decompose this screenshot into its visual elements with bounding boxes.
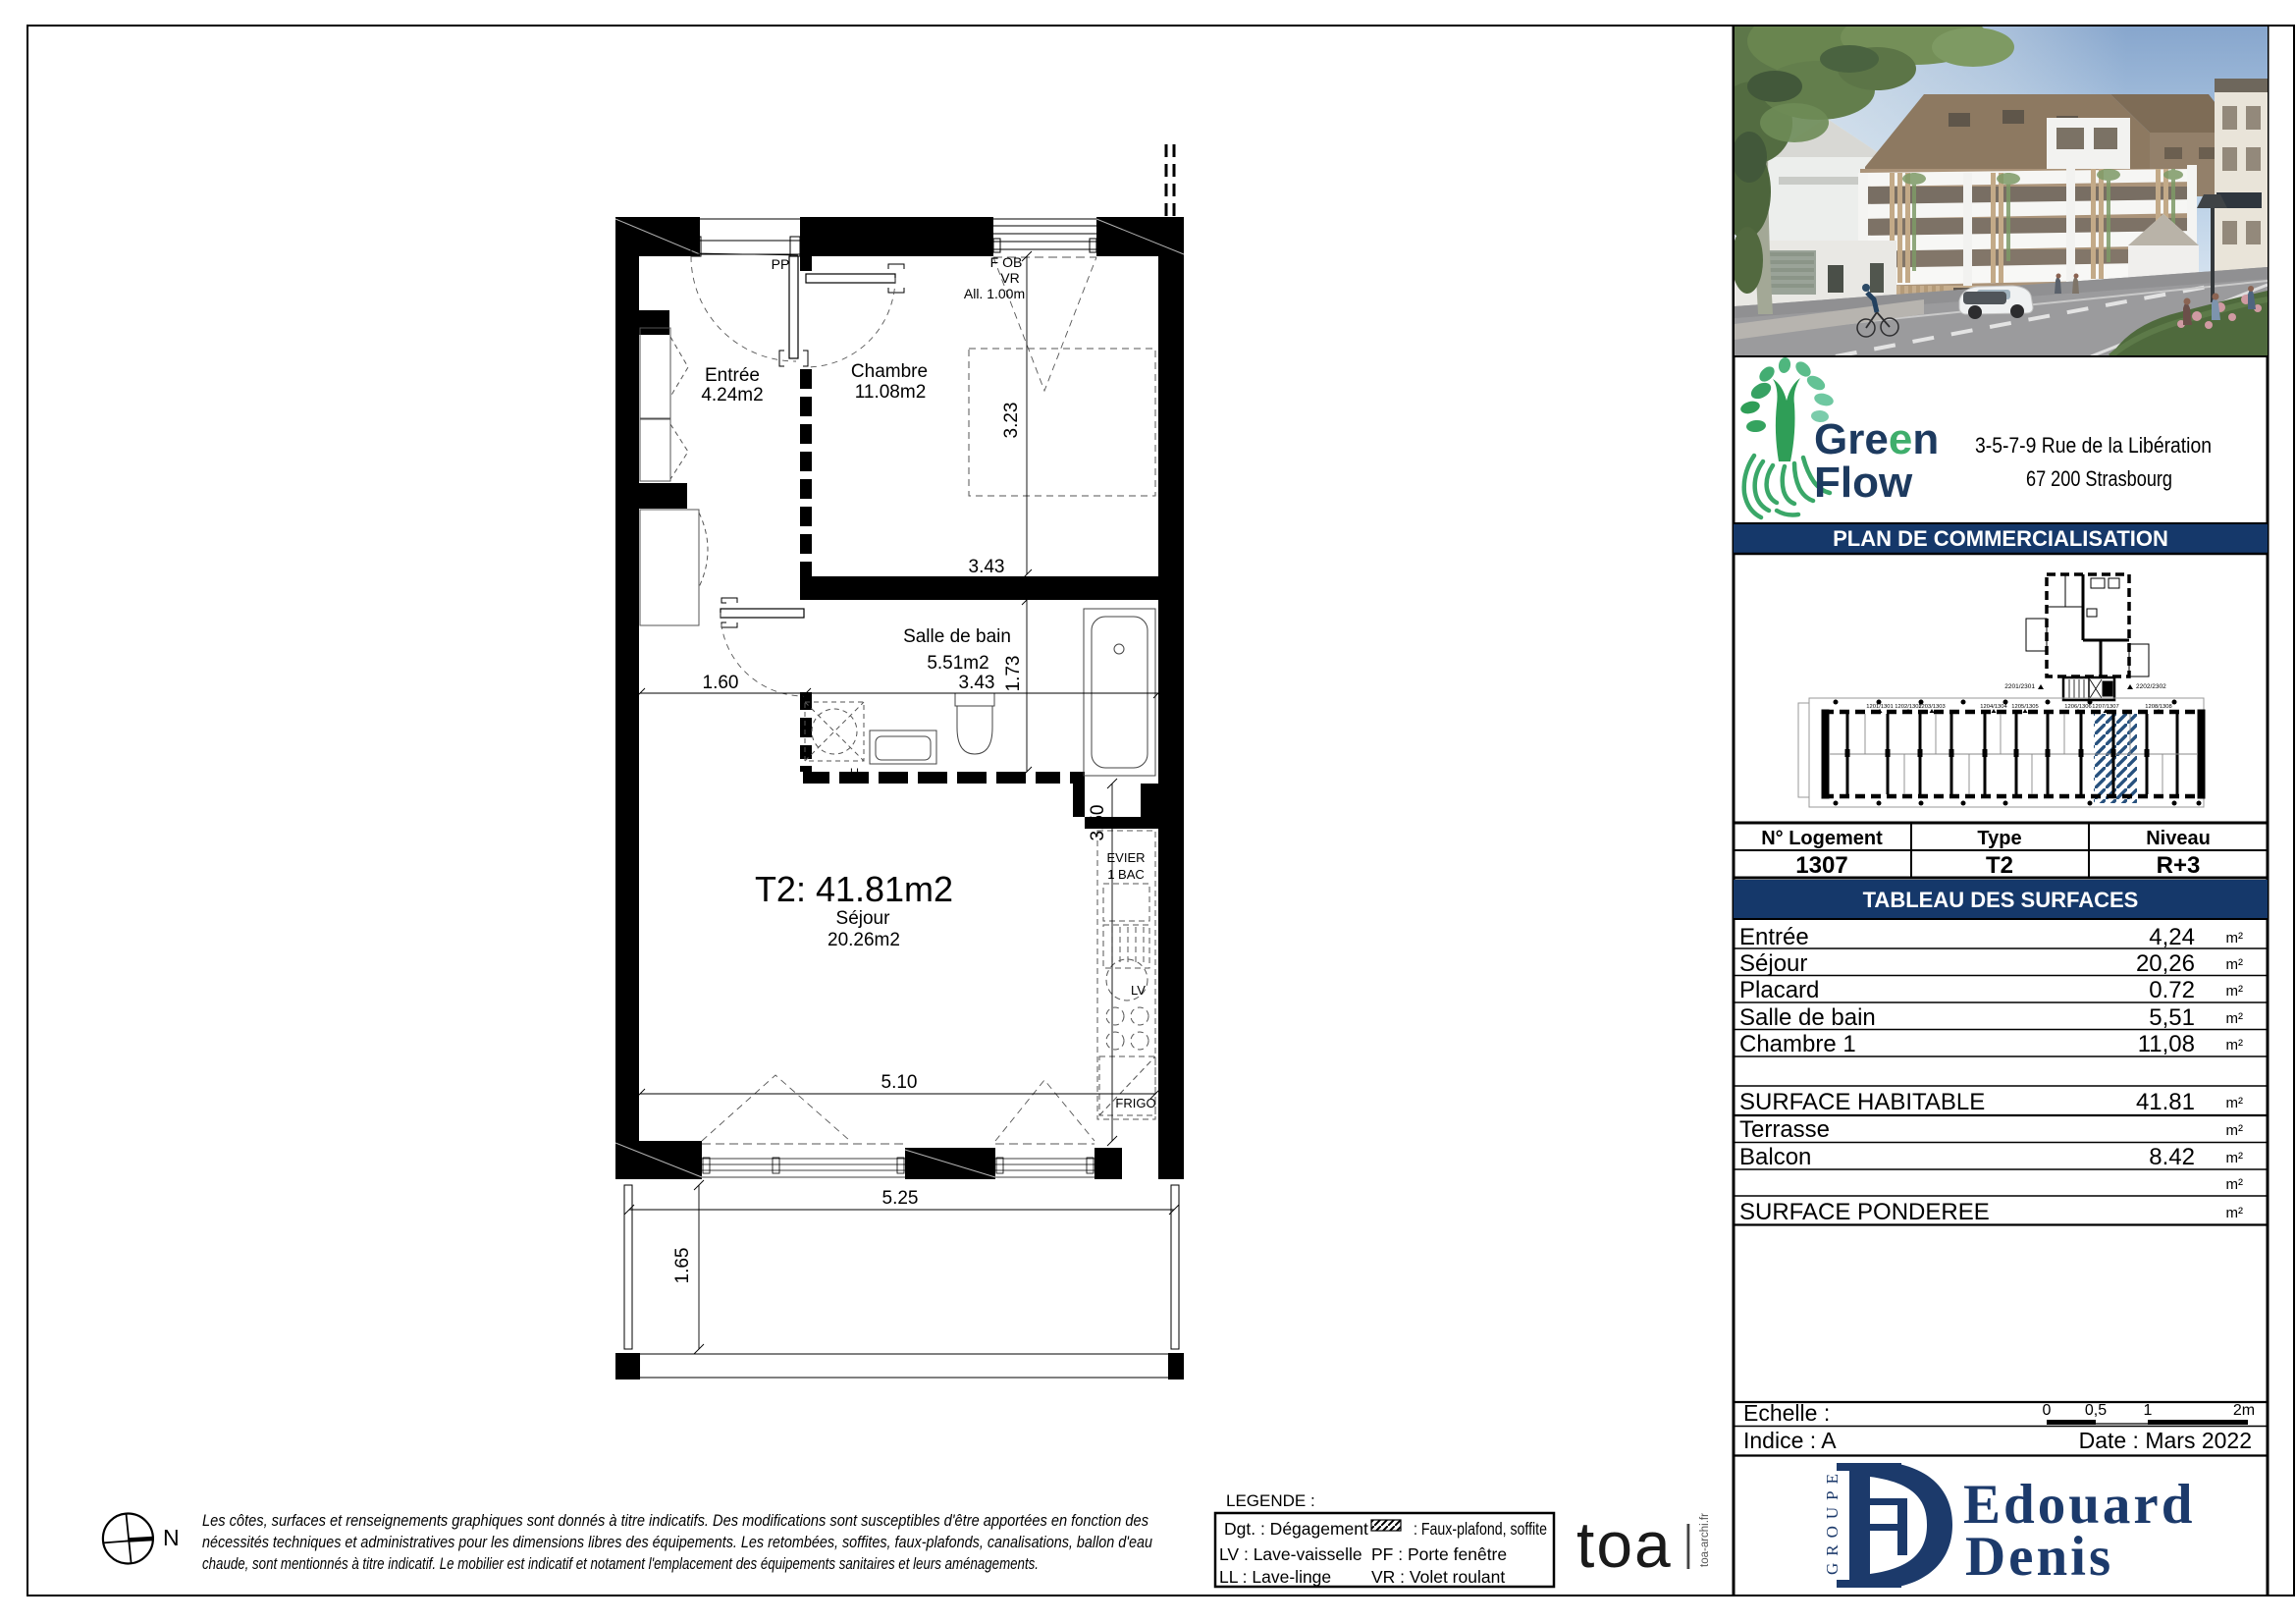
svg-text:0.72: 0.72 <box>2149 977 2195 1003</box>
svg-text:GROUPE: GROUPE <box>1823 1467 1842 1575</box>
svg-text:2201/2301: 2201/2301 <box>2004 683 2035 690</box>
svg-text:VR : Volet roulant: VR : Volet roulant <box>1371 1567 1505 1587</box>
svg-text:1.65: 1.65 <box>672 1248 693 1284</box>
svg-text:All. 1.00m: All. 1.00m <box>964 286 1025 301</box>
svg-text:Dgt. : Dégagement: Dgt. : Dégagement <box>1224 1519 1368 1539</box>
svg-text:m²: m² <box>2226 1095 2244 1111</box>
svg-text:2m: 2m <box>2233 1402 2255 1419</box>
svg-text:Entrée: Entrée <box>705 365 760 386</box>
svg-text:8.42: 8.42 <box>2149 1144 2195 1170</box>
svg-text:3.43: 3.43 <box>969 557 1005 577</box>
svg-text:R+3: R+3 <box>2157 852 2201 879</box>
svg-text:Séjour: Séjour <box>836 908 891 929</box>
svg-text:Denis: Denis <box>1965 1526 2113 1588</box>
svg-text:67 200 Strasbourg: 67 200 Strasbourg <box>2026 466 2172 491</box>
svg-text:N° Logement: N° Logement <box>1761 828 1883 849</box>
svg-text:PP: PP <box>772 256 790 272</box>
svg-text:5.10: 5.10 <box>881 1072 918 1093</box>
svg-text:TABLEAU DES SURFACES: TABLEAU DES SURFACES <box>1863 888 2139 912</box>
svg-text:Echelle :: Echelle : <box>1743 1400 1830 1426</box>
svg-text:1.60: 1.60 <box>703 673 739 693</box>
svg-text:Indice : A: Indice : A <box>1743 1428 1837 1453</box>
svg-text:11,08: 11,08 <box>2138 1031 2195 1057</box>
svg-text:Séjour: Séjour <box>1739 950 1807 977</box>
svg-text:toa-archi.fr: toa-archi.fr <box>1699 1513 1711 1567</box>
svg-text:PLAN DE COMMERCIALISATION: PLAN DE COMMERCIALISATION <box>1833 526 2168 551</box>
svg-text:5,51: 5,51 <box>2149 1004 2195 1031</box>
svg-text:Salle de bain: Salle de bain <box>903 626 1011 647</box>
svg-text:3.50: 3.50 <box>1088 805 1108 841</box>
svg-text:Chambre: Chambre <box>851 361 928 382</box>
svg-text:nécessités techniques et admin: nécessités techniques et administratives… <box>202 1534 1152 1551</box>
svg-text:0: 0 <box>2043 1402 2052 1419</box>
svg-text:20,26: 20,26 <box>2136 950 2195 977</box>
svg-text:m²: m² <box>2226 1205 2244 1221</box>
svg-text:m²: m² <box>2226 1150 2244 1166</box>
svg-text:LL: LL <box>850 767 862 779</box>
svg-text:Type: Type <box>1977 828 2021 849</box>
svg-text:Balcon: Balcon <box>1739 1144 1811 1170</box>
svg-text:Niveau: Niveau <box>2146 828 2211 849</box>
svg-text:0,5: 0,5 <box>2085 1402 2107 1419</box>
svg-text:m²: m² <box>2226 1010 2244 1027</box>
svg-text:1: 1 <box>2144 1402 2153 1419</box>
svg-text:: Faux-plafond, soffite: : Faux-plafond, soffite <box>1414 1519 1547 1539</box>
svg-text:Date : Mars 2022: Date : Mars 2022 <box>2079 1428 2252 1453</box>
svg-text:Green: Green <box>1814 415 1939 463</box>
svg-text:Terrasse: Terrasse <box>1739 1116 1830 1143</box>
svg-text:LV : Lave-vaisselle: LV : Lave-vaisselle <box>1219 1544 1362 1564</box>
svg-text:2202/2302: 2202/2302 <box>2136 683 2166 690</box>
svg-text:5.25: 5.25 <box>882 1188 919 1209</box>
svg-text:5.51m2: 5.51m2 <box>927 653 988 674</box>
svg-text:m²: m² <box>2226 1122 2244 1139</box>
svg-text:FRIGO: FRIGO <box>1115 1096 1155 1110</box>
svg-text:20.26m2: 20.26m2 <box>828 930 900 950</box>
svg-text:1 BAC: 1 BAC <box>1107 867 1145 882</box>
svg-text:PF : Porte fenêtre: PF : Porte fenêtre <box>1371 1544 1507 1564</box>
svg-text:Salle de bain: Salle de bain <box>1739 1004 1876 1031</box>
svg-text:Chambre 1: Chambre 1 <box>1739 1031 1856 1057</box>
svg-text:1307: 1307 <box>1795 852 1847 879</box>
svg-text:m²: m² <box>2226 930 2244 947</box>
svg-text:m²: m² <box>2226 1176 2244 1193</box>
svg-text:toa: toa <box>1576 1508 1673 1581</box>
svg-text:LL : Lave-linge: LL : Lave-linge <box>1219 1567 1331 1587</box>
svg-text:3.23: 3.23 <box>1001 403 1022 439</box>
svg-text:3-5-7-9 Rue de la Libération: 3-5-7-9 Rue de la Libération <box>1975 433 2212 458</box>
svg-text:Placard: Placard <box>1739 977 1819 1003</box>
svg-text:m²: m² <box>2226 956 2244 973</box>
svg-text:m²: m² <box>2226 1037 2244 1054</box>
svg-text:SURFACE PONDEREE: SURFACE PONDEREE <box>1739 1199 1990 1225</box>
svg-text:LV: LV <box>1131 983 1146 998</box>
svg-text:Flow: Flow <box>1814 459 1913 507</box>
svg-text:T2: T2 <box>1986 852 2013 879</box>
svg-text:F OB: F OB <box>990 254 1023 270</box>
svg-text:4.24m2: 4.24m2 <box>701 385 763 406</box>
svg-text:Les côtes, surfaces et renseig: Les côtes, surfaces et renseignements gr… <box>202 1512 1148 1530</box>
svg-text:11.08m2: 11.08m2 <box>855 382 927 403</box>
svg-text:1.73: 1.73 <box>1003 656 1024 692</box>
svg-text:Entrée: Entrée <box>1739 924 1809 950</box>
svg-text:1204/1304: 1204/1304 <box>1980 704 2007 710</box>
svg-text:41.81: 41.81 <box>2136 1089 2195 1115</box>
svg-text:chaude, sont mentionnés à titr: chaude, sont mentionnés à titre indicati… <box>202 1555 1039 1573</box>
svg-text:SURFACE HABITABLE: SURFACE HABITABLE <box>1739 1089 1985 1115</box>
svg-text:N: N <box>163 1525 180 1550</box>
svg-text:T2: 41.81m2: T2: 41.81m2 <box>755 869 953 909</box>
svg-text:3.43: 3.43 <box>959 673 995 693</box>
svg-text:LEGENDE :: LEGENDE : <box>1226 1491 1315 1510</box>
svg-text:m²: m² <box>2226 983 2244 1000</box>
svg-text:VR: VR <box>1000 270 1019 286</box>
svg-text:4,24: 4,24 <box>2149 924 2195 950</box>
